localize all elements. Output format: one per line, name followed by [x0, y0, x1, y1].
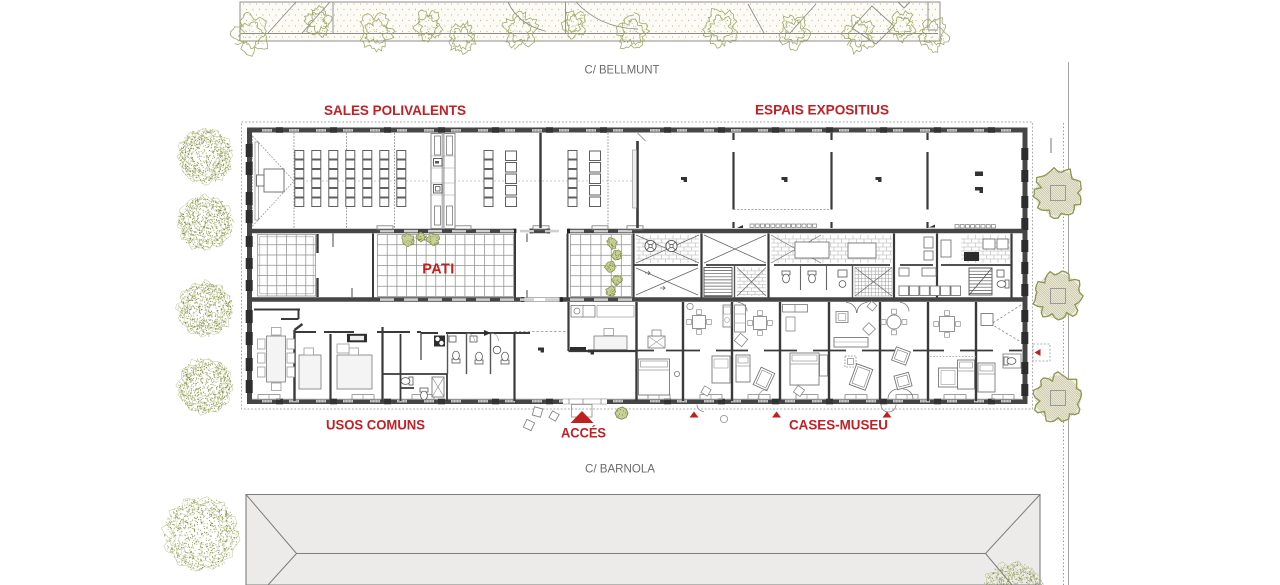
svg-text:SALES POLIVALENTS: SALES POLIVALENTS — [324, 103, 466, 118]
svg-text:C/ BELLMUNT: C/ BELLMUNT — [585, 63, 661, 77]
svg-text:PATI: PATI — [422, 262, 454, 278]
svg-text:C/ BARNOLA: C/ BARNOLA — [585, 462, 655, 476]
svg-text:ACCÉS: ACCÉS — [561, 425, 606, 441]
svg-text:ESPAIS EXPOSITIUS: ESPAIS EXPOSITIUS — [755, 103, 889, 118]
svg-text:CASES-MUSEU: CASES-MUSEU — [789, 418, 888, 433]
svg-text:USOS COMUNS: USOS COMUNS — [326, 418, 425, 433]
